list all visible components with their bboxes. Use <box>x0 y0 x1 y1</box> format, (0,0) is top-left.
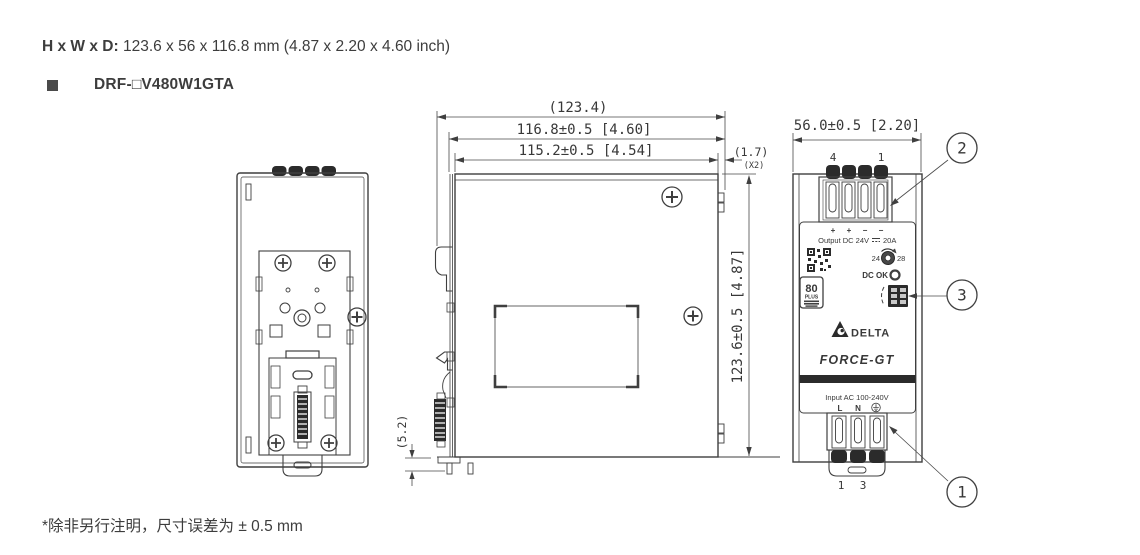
model-row: DRF-□V480W1GTA <box>47 76 234 94</box>
label-recess <box>495 306 638 387</box>
polarity-plus-1: + <box>831 226 836 235</box>
input-line-label: L <box>838 404 843 413</box>
earth-ground-icon <box>872 403 881 412</box>
output-terminal-block: 4 1 <box>819 151 892 222</box>
rear-side-screw <box>348 308 366 326</box>
output-current-label: 20A <box>883 236 896 245</box>
size-heading-label: H x W x D: <box>42 38 119 55</box>
output-rating-label: Output DC 24V <box>818 236 869 245</box>
input-neutral-label: N <box>855 404 861 413</box>
polarity-minus-2: − <box>879 226 884 235</box>
side-din-hook <box>434 247 454 447</box>
callout-output-number: 2 <box>957 139 967 158</box>
rear-terminal-caps <box>272 166 336 176</box>
callout-signal-number: 3 <box>957 286 967 305</box>
callout-input: 1 <box>889 426 977 507</box>
side-base <box>437 457 780 474</box>
badge-plus-label: PLUS <box>805 295 819 301</box>
side-screw-bottom <box>684 307 702 325</box>
callout-output: 2 <box>890 133 977 206</box>
qr-code-icon <box>807 248 831 272</box>
input-terminal-number-left: 1 <box>838 479 845 492</box>
size-heading-value: 123.6 x 56 x 116.8 mm (4.87 x 2.20 x 4.6… <box>119 38 450 55</box>
datasheet-dimension-drawing: H x W x D: 123.6 x 56 x 116.8 mm (4.87 x… <box>0 0 1140 555</box>
output-terminal-number-right: 1 <box>878 151 885 164</box>
dim-width: 56.0±0.5 [2.20] <box>794 118 920 134</box>
side-view-drawing: (123.4) 116.8±0.5 [4.60] 115.2±0.5 [4.54… <box>395 93 787 495</box>
dim-body-depth: 115.2±0.5 [4.54] <box>519 143 654 159</box>
tolerance-note: *除非另行注明，尺寸误差为 ± 0.5 mm <box>42 514 303 536</box>
model-number: DRF-□V480W1GTA <box>94 76 234 94</box>
side-clip-spring <box>434 393 446 447</box>
product-series-name: FORCE-GT <box>820 353 895 367</box>
side-body <box>450 174 724 457</box>
clip-spring <box>294 386 311 448</box>
dc-ok-led <box>891 271 900 280</box>
callout-input-number: 1 <box>957 483 967 502</box>
output-terminal-number-left: 4 <box>830 151 837 164</box>
dim-tab-qty: (X2) <box>744 161 764 171</box>
front-body <box>793 174 922 462</box>
dim-tab: (1.7) <box>734 145 769 159</box>
dc-ok-indicator: DC OK <box>862 271 899 281</box>
dim-clip-extension: (5.2) <box>395 415 409 450</box>
width-dimension-lines <box>793 133 921 172</box>
plate-screws <box>275 255 335 271</box>
dim-depth-with-rail: 116.8±0.5 [4.60] <box>517 122 652 138</box>
adjust-min-label: 24 <box>872 254 880 263</box>
dc-ok-label: DC OK <box>862 271 888 280</box>
input-rating-label: Input AC 100-240V <box>825 393 888 402</box>
dimension-lines <box>405 111 756 486</box>
input-terminal-number-right: 3 <box>860 479 867 492</box>
side-screw-top <box>662 187 682 207</box>
rear-view-drawing <box>225 160 385 490</box>
size-heading: H x W x D: 123.6 x 56 x 116.8 mm (4.87 x… <box>42 38 450 56</box>
dim-overall-depth: (123.4) <box>548 100 607 116</box>
80plus-badge: 80 PLUS <box>800 277 823 308</box>
input-terminal-block: 1 3 <box>827 413 887 492</box>
callout-signal: 3 <box>908 280 977 310</box>
front-panel-print: + + − − Output DC 24V 20A 24 <box>800 226 916 413</box>
brand-name: DELTA <box>851 328 890 340</box>
voltage-adjust-knob: 24 28 <box>872 249 906 265</box>
bullet-square-icon <box>47 80 58 91</box>
badge-80-label: 80 <box>805 283 817 295</box>
signal-relay-connector <box>882 285 909 307</box>
adjust-max-label2: 28 <box>897 254 905 263</box>
din-rail-clip <box>268 351 337 476</box>
dc-symbol-icon <box>872 239 880 242</box>
clip-tab <box>283 455 322 476</box>
polarity-minus-1: − <box>863 226 868 235</box>
dark-band <box>800 375 916 383</box>
delta-logo: DELTA <box>832 321 891 340</box>
dim-height: 123.6±0.5 [4.87] <box>730 249 746 384</box>
polarity-plus-2: + <box>847 226 852 235</box>
front-view-drawing: 56.0±0.5 [2.20] 4 1 <box>785 95 990 520</box>
